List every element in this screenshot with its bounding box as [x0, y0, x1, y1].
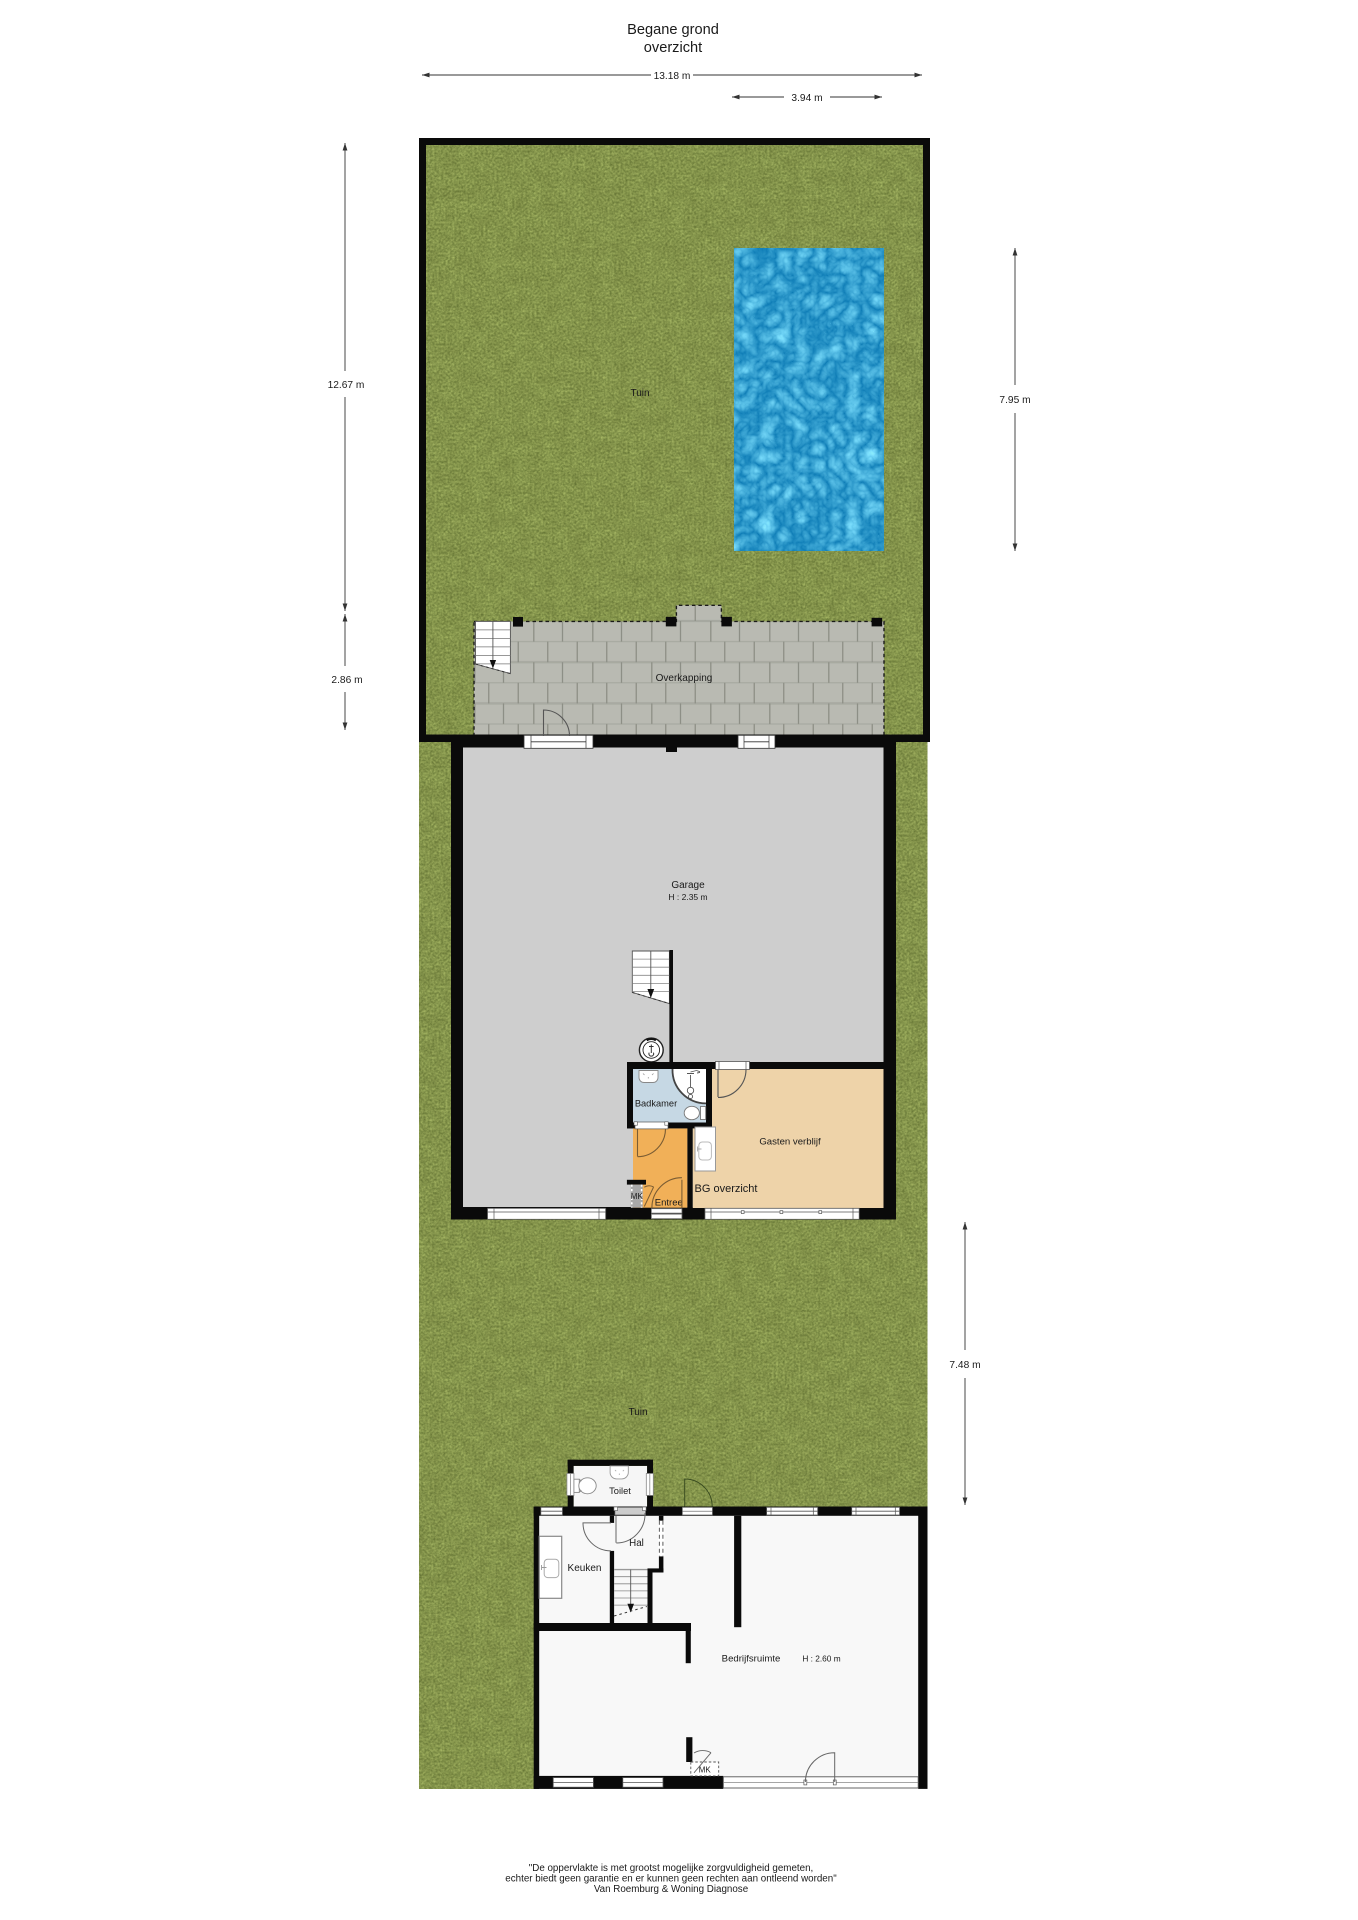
svg-text:13.18 m: 13.18 m	[654, 71, 691, 82]
svg-text:H : 2.35 m: H : 2.35 m	[668, 892, 707, 902]
svg-text:Tuin: Tuin	[630, 388, 649, 399]
svg-text:MK: MK	[699, 1766, 712, 1775]
svg-text:Bedrijfsruimte: Bedrijfsruimte	[722, 1654, 781, 1665]
svg-text:Hal: Hal	[629, 1538, 644, 1549]
svg-text:Garage: Garage	[671, 880, 705, 891]
svg-text:echter biedt geen garantie en: echter biedt geen garantie en er kunnen …	[505, 1874, 837, 1885]
svg-text:Keuken: Keuken	[568, 1563, 602, 1574]
svg-text:12.67 m: 12.67 m	[328, 380, 365, 391]
svg-text:7.95 m: 7.95 m	[999, 395, 1030, 406]
svg-text:Toilet: Toilet	[609, 1486, 631, 1496]
svg-text:overzicht: overzicht	[644, 40, 702, 56]
svg-text:7.48 m: 7.48 m	[949, 1360, 980, 1371]
svg-text:3.94 m: 3.94 m	[791, 93, 822, 104]
svg-text:Begane grond: Begane grond	[627, 22, 719, 38]
svg-text:"De oppervlakte is met grootst: "De oppervlakte is met grootst mogelijke…	[529, 1863, 813, 1874]
svg-text:Overkapping: Overkapping	[656, 673, 713, 684]
svg-text:MK: MK	[631, 1192, 644, 1201]
svg-text:H : 2.60 m: H : 2.60 m	[802, 1654, 840, 1664]
svg-text:Tuin: Tuin	[628, 1407, 647, 1418]
svg-text:Van Roemburg & Woning Diagnose: Van Roemburg & Woning Diagnose	[594, 1884, 749, 1895]
svg-text:Entree: Entree	[655, 1198, 683, 1209]
svg-text:2.86 m: 2.86 m	[331, 675, 362, 686]
svg-text:BG overzicht: BG overzicht	[695, 1183, 758, 1195]
svg-text:Badkamer: Badkamer	[635, 1099, 677, 1109]
svg-text:Gasten verblijf: Gasten verblijf	[759, 1137, 821, 1148]
